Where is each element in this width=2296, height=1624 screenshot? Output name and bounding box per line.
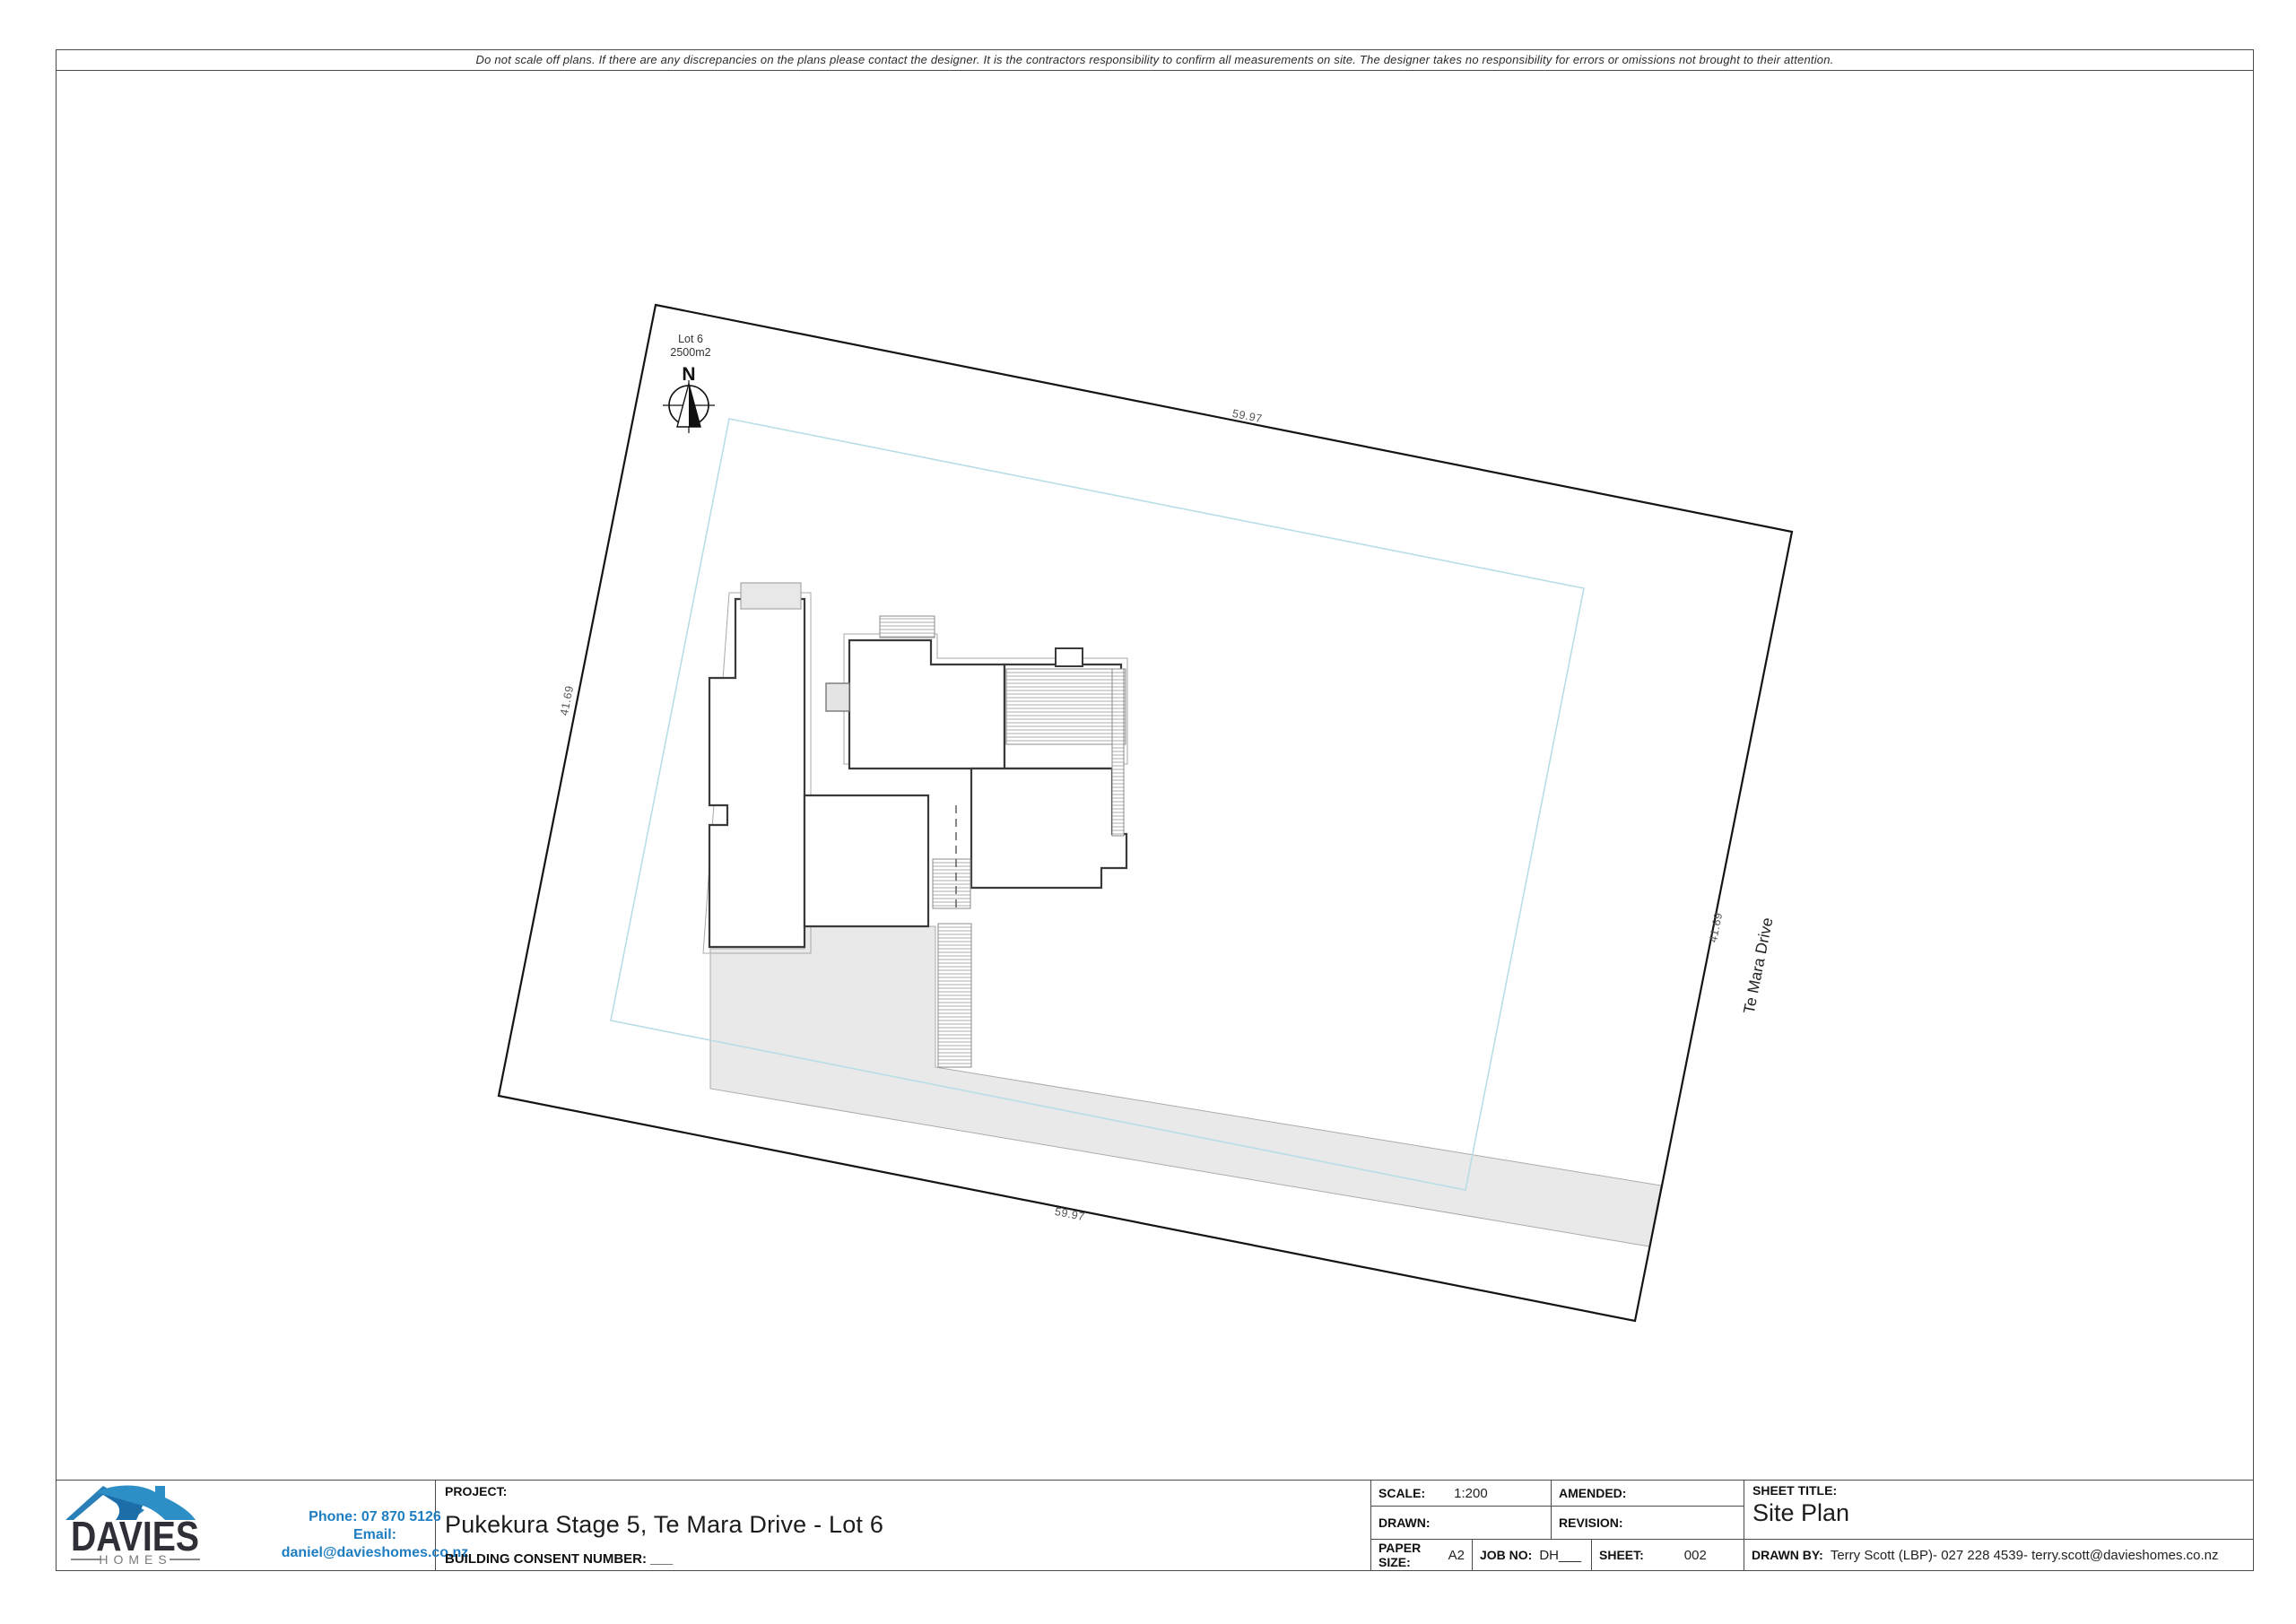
scale-value: 1:200 [1454,1486,1488,1501]
drawn-cell: DRAWN: [1371,1507,1551,1540]
deck-side-hatch [1112,669,1124,836]
sheet-number-value: 002 [1684,1548,1707,1563]
paper-size-cell: PAPER SIZE: A2 [1371,1540,1472,1570]
lot-label-group: Lot 6 2500m2 [670,333,710,359]
steps-hatch-lower [938,924,971,1067]
house-left-wing [709,599,804,947]
paper-size-label: PAPER SIZE: [1378,1541,1439,1569]
site-plan-drawing: Lot 6 2500m2 N 59.97 59.97 41.69 41.69 T… [0,0,2296,1624]
porch-slab [741,583,801,609]
entry-slab [826,683,849,711]
drawn-by-value: Terry Scott (LBP)- 027 228 4539- terry.s… [1831,1548,2219,1563]
sheet-title-value: Site Plan [1752,1499,2246,1527]
pergola-hatch [880,616,935,638]
project-name: Pukekura Stage 5, Te Mara Drive - Lot 6 [445,1511,1361,1539]
dim-left: 41.69 [558,684,576,716]
logo-cell: DAVIES HOMES Phone: 07 870 5126 Email: d… [57,1481,436,1570]
logo-subtitle: HOMES [99,1552,171,1567]
sheet-title-cell: SHEET TITLE: Site Plan [1744,1481,2254,1540]
steps-hatch-upper [933,859,970,908]
lot-label: Lot 6 [678,333,703,345]
north-arrow: N [663,364,715,433]
driveway-area [710,926,1661,1246]
road-name-label: Te Mara Drive [1740,916,1777,1015]
revision-cell: REVISION: [1551,1507,1744,1540]
sheet-title-label: SHEET TITLE: [1752,1483,2246,1498]
dim-right: 41.69 [1707,911,1725,943]
sheet-number-label: SHEET: [1599,1548,1644,1562]
house-right-room [971,769,1126,888]
amended-cell: AMENDED: [1551,1481,1744,1507]
drawn-label: DRAWN: [1378,1515,1431,1530]
drawn-by-label: DRAWN BY: [1752,1548,1823,1562]
chimney [1056,648,1083,666]
deck-hatch [1006,669,1126,744]
amended-label: AMENDED: [1559,1486,1626,1500]
title-block: DAVIES HOMES Phone: 07 870 5126 Email: d… [56,1480,2254,1571]
paper-size-value: A2 [1448,1548,1465,1563]
job-no-value: DH___ [1539,1548,1581,1563]
house-mid-top-room [849,640,1004,769]
lot-boundary [499,305,1792,1321]
building-consent-number: BUILDING CONSENT NUMBER: ___ [445,1551,1361,1567]
revision-label: REVISION: [1559,1515,1623,1530]
sheet-number-cell: SHEET: 002 [1591,1540,1744,1570]
scale-label: SCALE: [1378,1486,1425,1500]
dim-top: 59.97 [1231,407,1264,425]
house-lower-mid-room [804,795,928,926]
job-no-cell: JOB NO: DH___ [1472,1540,1591,1570]
drawing-sheet: Do not scale off plans. If there are any… [0,0,2296,1624]
project-label: PROJECT: [445,1484,1361,1498]
drawn-by-cell: DRAWN BY: Terry Scott (LBP)- 027 228 453… [1744,1540,2254,1570]
project-cell: PROJECT: Pukekura Stage 5, Te Mara Drive… [436,1481,1371,1570]
lot-area-label: 2500m2 [670,346,710,359]
job-no-label: JOB NO: [1480,1548,1532,1562]
scale-cell: SCALE: 1:200 [1371,1481,1551,1507]
dim-bottom: 59.97 [1054,1205,1086,1223]
